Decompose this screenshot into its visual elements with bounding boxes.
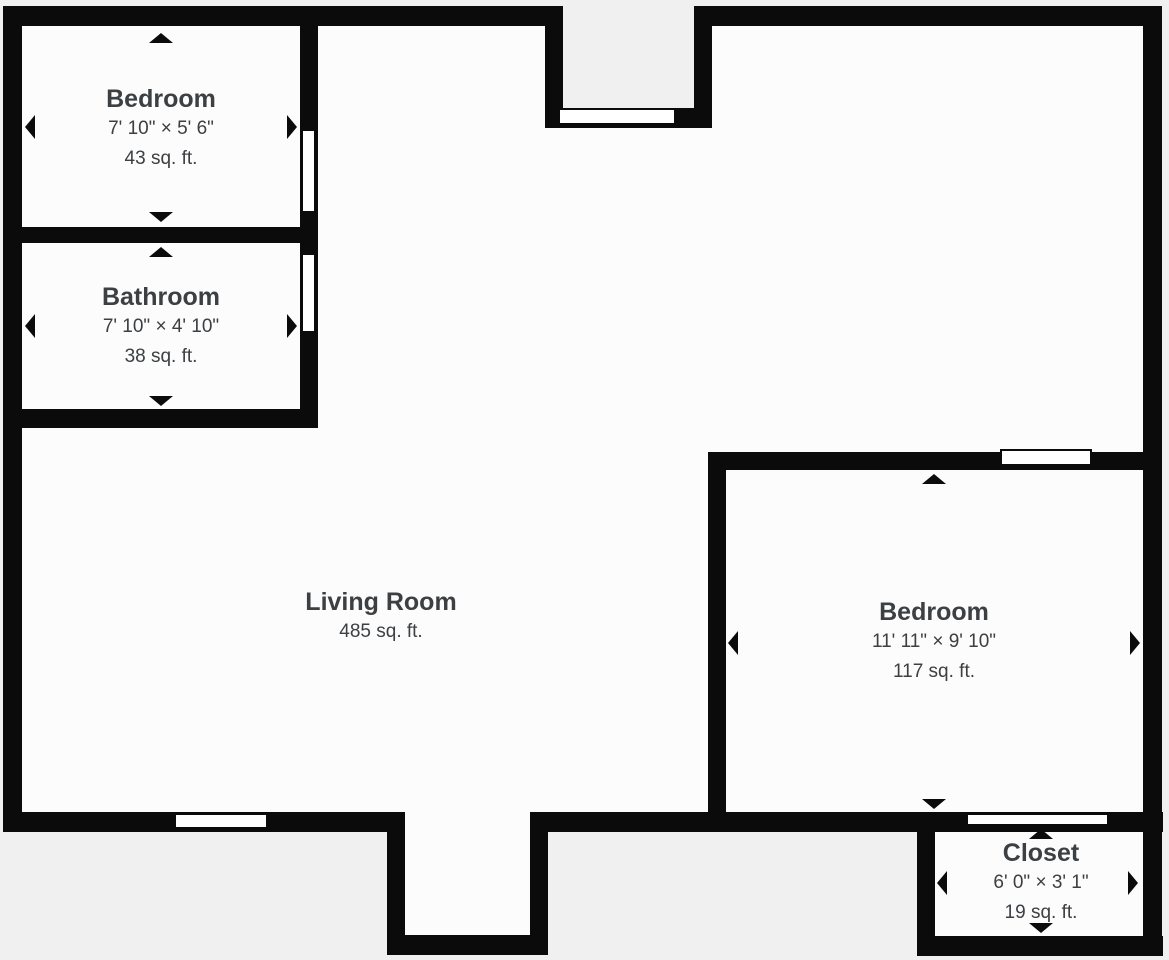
wall-top-right [694, 6, 1162, 26]
bathroom-arrow-up-icon [149, 247, 173, 257]
room-label-bedroom-1: Bedroom 7' 10" × 5' 6" 43 sq. ft. [106, 84, 216, 174]
room-area: 19 sq. ft. [993, 898, 1088, 928]
wall-entry-nook-left [387, 812, 405, 955]
bedroom-2-arrow-left-icon [728, 631, 738, 655]
floor-entry-nook [405, 812, 530, 935]
wall-closet-bottom [917, 936, 1163, 956]
room-name: Bedroom [872, 597, 996, 627]
room-label-bathroom: Bathroom 7' 10" × 4' 10" 38 sq. ft. [102, 282, 220, 372]
room-dimensions: 7' 10" × 4' 10" [102, 312, 220, 342]
room-name: Bathroom [102, 282, 220, 312]
wall-bedroom-1-bathroom-divider [3, 227, 318, 243]
bedroom-2-arrow-right-icon [1130, 631, 1140, 655]
window-living-room-bottom [174, 813, 268, 829]
room-area: 43 sq. ft. [106, 144, 216, 174]
room-area: 38 sq. ft. [102, 342, 220, 372]
bedroom-2-arrow-up-icon [922, 474, 946, 484]
bathroom-arrow-left-icon [25, 314, 35, 338]
door-closet [967, 814, 1108, 825]
bathroom-arrow-right-icon [287, 314, 297, 338]
bedroom-2-arrow-down-icon [922, 799, 946, 809]
room-dimensions: 11' 11" × 9' 10" [872, 627, 996, 657]
bedroom-1-arrow-right-icon [287, 115, 297, 139]
door-bathroom [302, 254, 315, 332]
room-dimensions: 7' 10" × 5' 6" [106, 114, 216, 144]
wall-bedroom-2-left [708, 452, 726, 832]
bedroom-1-arrow-left-icon [25, 115, 35, 139]
room-name: Living Room [305, 587, 456, 617]
window-bedroom-2-top [1000, 449, 1092, 466]
floor-living-room-upper [318, 26, 1143, 452]
wall-bedroom-2-top [708, 452, 1162, 470]
bedroom-1-arrow-up-icon [149, 33, 173, 43]
wall-closet-left [917, 812, 935, 956]
wall-bedroom-1-bathroom-right [300, 6, 318, 428]
door-bedroom-1 [302, 130, 315, 212]
room-dimensions: 6' 0" × 3' 1" [993, 868, 1088, 898]
room-name: Bedroom [106, 84, 216, 114]
window-recess [558, 108, 676, 125]
bathroom-arrow-down-icon [149, 396, 173, 406]
wall-bathroom-bottom [3, 409, 318, 428]
closet-arrow-right-icon [1128, 871, 1138, 895]
wall-entry-nook-bottom [387, 935, 548, 955]
wall-top-left [3, 6, 563, 26]
room-label-living-room: Living Room 485 sq. ft. [305, 587, 456, 647]
room-label-bedroom-2: Bedroom 11' 11" × 9' 10" 117 sq. ft. [872, 597, 996, 687]
room-area: 117 sq. ft. [872, 657, 996, 687]
room-area: 485 sq. ft. [305, 617, 456, 647]
closet-arrow-left-icon [937, 871, 947, 895]
floor-plan: Bedroom 7' 10" × 5' 6" 43 sq. ft. Bathro… [0, 0, 1169, 960]
exterior-recess [563, 6, 694, 108]
room-label-closet: Closet 6' 0" × 3' 1" 19 sq. ft. [993, 838, 1088, 928]
room-name: Closet [993, 838, 1088, 868]
bedroom-1-arrow-down-icon [149, 212, 173, 222]
wall-entry-nook-right [530, 812, 548, 955]
